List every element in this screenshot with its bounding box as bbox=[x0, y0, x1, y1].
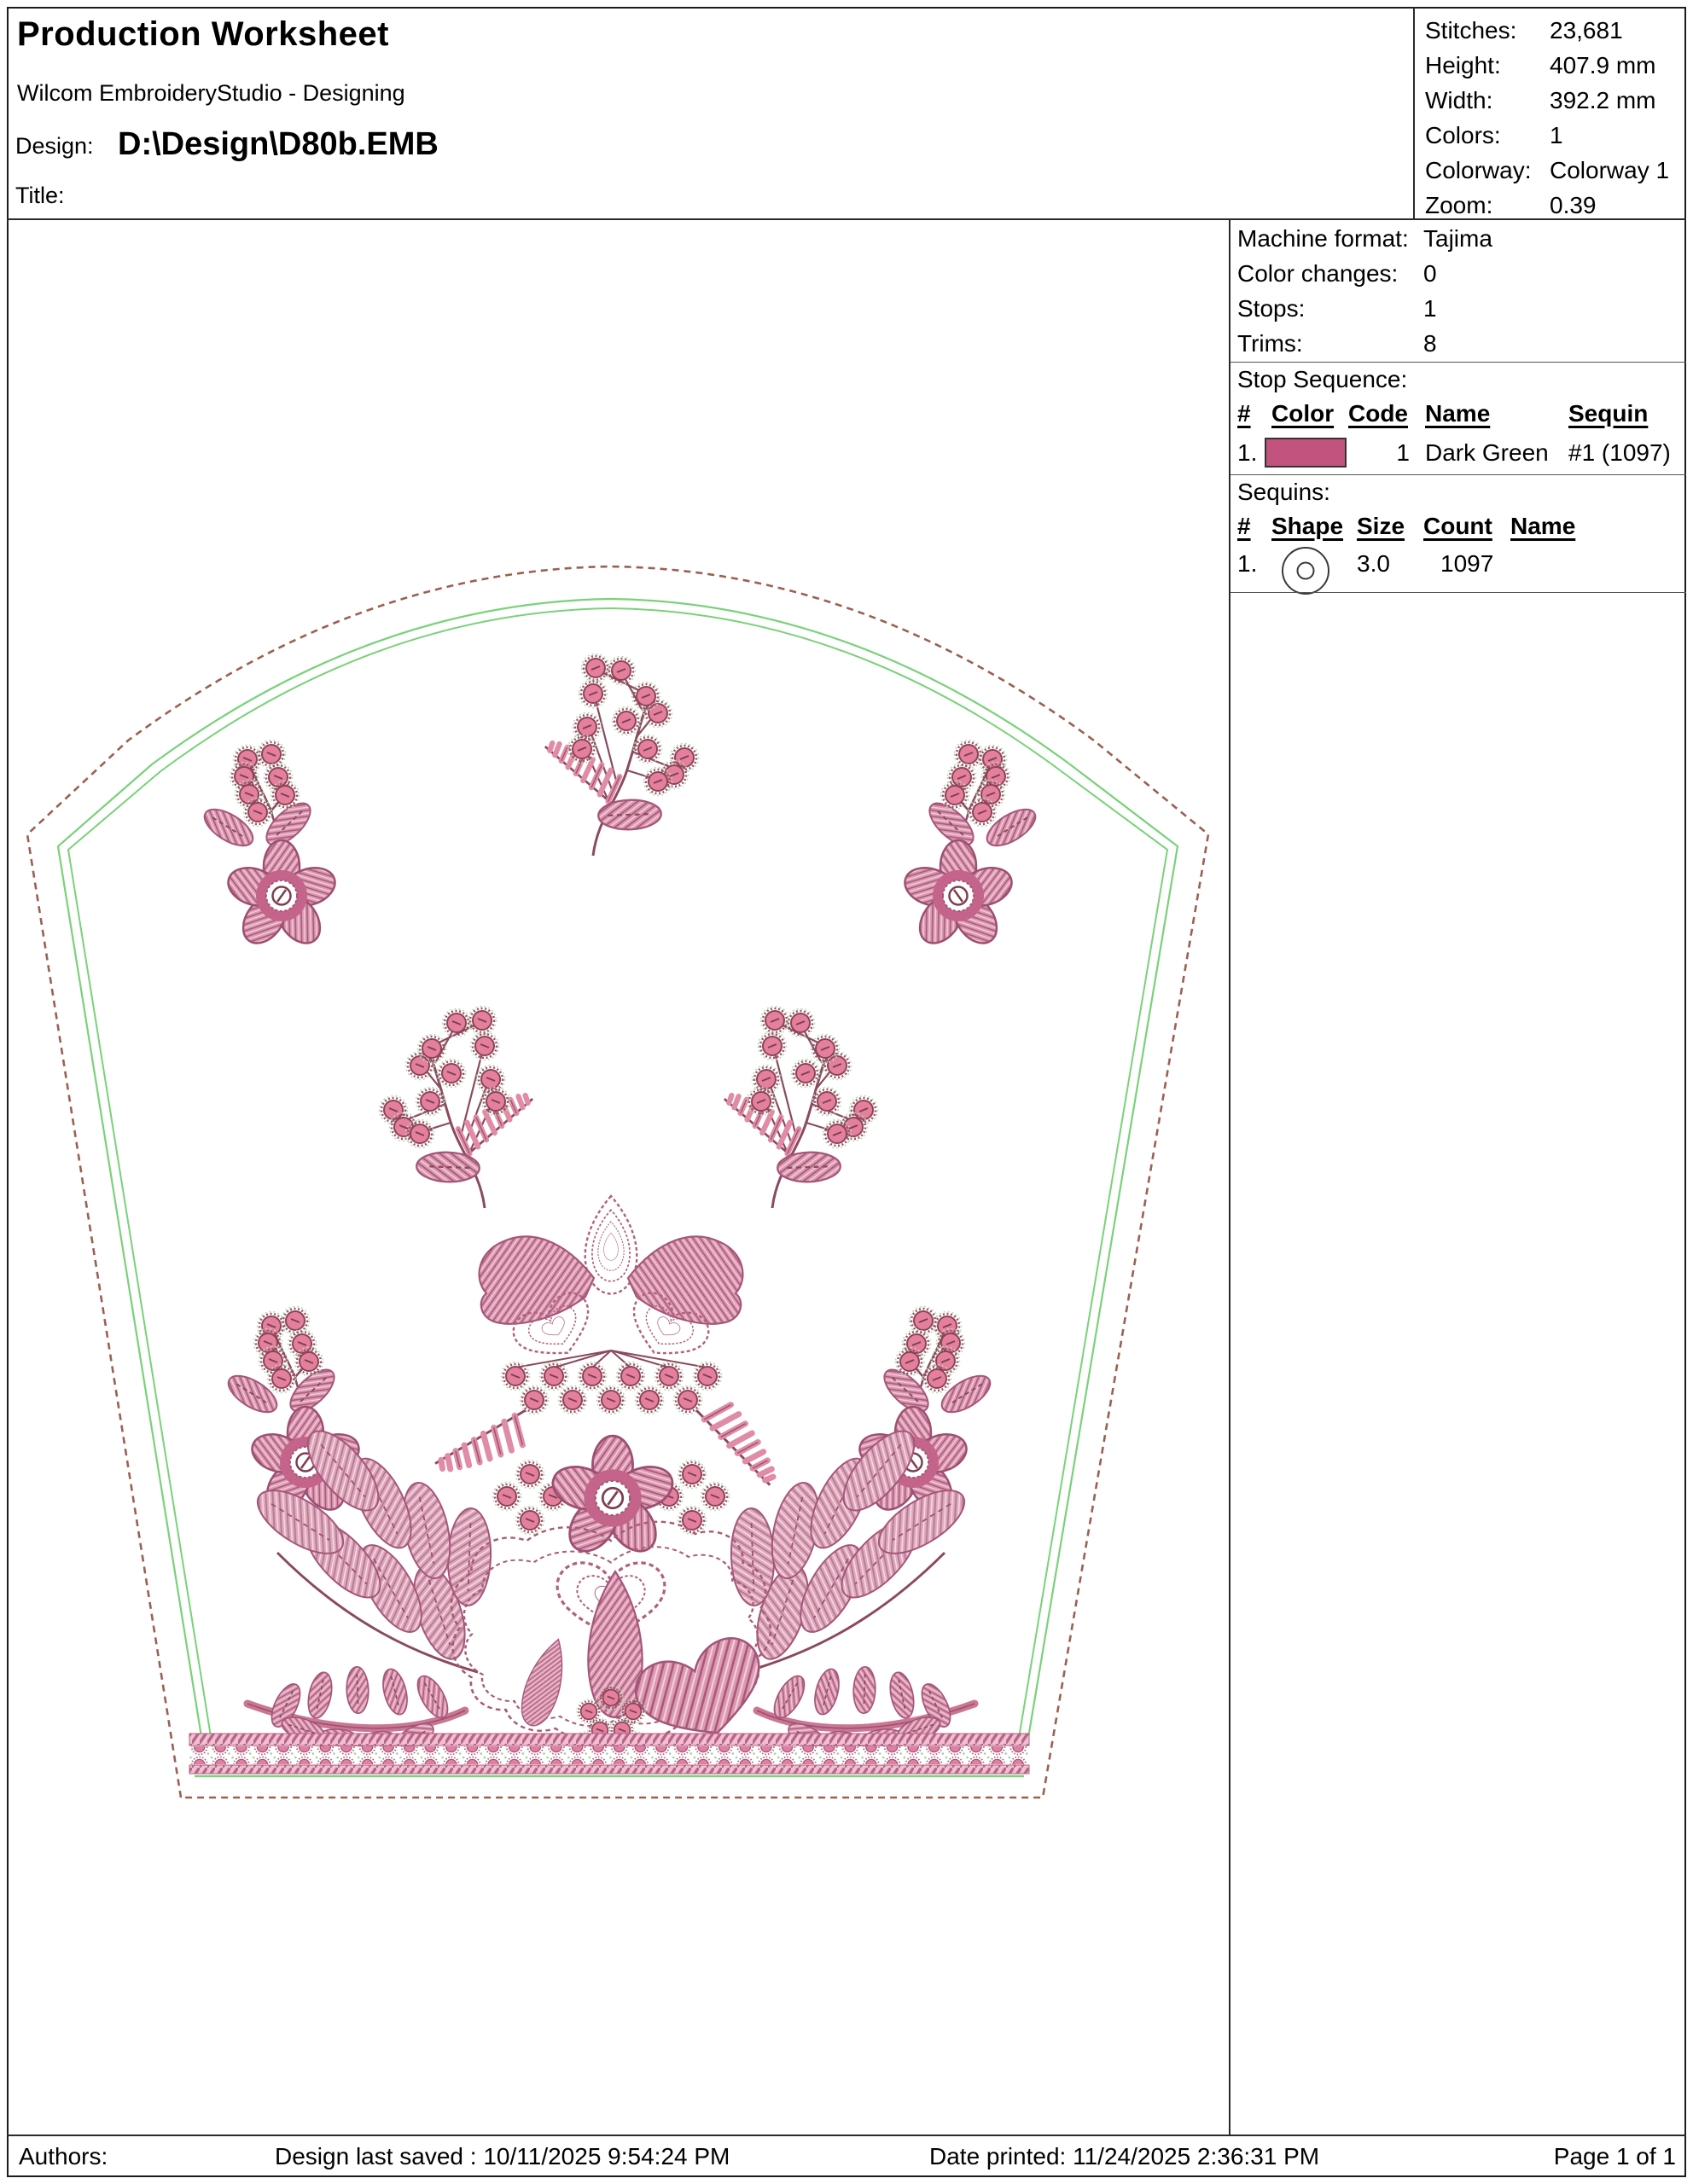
footer-authors-label: Authors: bbox=[19, 2136, 108, 2177]
mid-sprig-right bbox=[724, 1007, 878, 1209]
stop-row-num: 1. bbox=[1237, 439, 1257, 467]
machine-info: Machine format: Tajima Color changes: 0 … bbox=[1230, 220, 1686, 362]
stop-row-sequin: #1 (1097) bbox=[1568, 439, 1671, 467]
side-motif-top-right bbox=[900, 741, 1041, 951]
info-row-value: 1 bbox=[1550, 122, 1563, 149]
footer-last-saved: Design last saved : 10/11/2025 9:54:24 P… bbox=[275, 2136, 730, 2177]
info-box: Stitches: 23,681 Height: 407.9 mm Width:… bbox=[1415, 7, 1686, 218]
machine-row-value: 1 bbox=[1423, 295, 1437, 322]
column-header: Color bbox=[1271, 400, 1334, 427]
border-band bbox=[189, 1734, 1029, 1776]
column-header: Count bbox=[1423, 513, 1492, 540]
info-row-label: Zoom: bbox=[1425, 192, 1492, 219]
app-subtitle: Wilcom EmbroideryStudio - Designing bbox=[17, 80, 405, 107]
column-header: Sequin bbox=[1568, 400, 1648, 427]
production-worksheet-page: { "header": { "title": "Production Works… bbox=[0, 0, 1693, 2184]
info-row-value: 23,681 bbox=[1550, 17, 1623, 44]
machine-row-value: 0 bbox=[1423, 260, 1437, 288]
column-header: Name bbox=[1510, 513, 1575, 540]
design-label: Design: bbox=[15, 133, 94, 160]
sequin-row-count: 1097 bbox=[1440, 550, 1493, 578]
center-crown-motif bbox=[435, 1196, 794, 1560]
column-header: Size bbox=[1357, 513, 1405, 540]
design-path: D:\Design\D80b.EMB bbox=[118, 126, 439, 163]
sequins-heading: Sequins: bbox=[1237, 479, 1330, 506]
machine-row-label: Color changes: bbox=[1237, 260, 1398, 288]
sequin-row-size: 3.0 bbox=[1357, 550, 1390, 578]
column-header: Shape bbox=[1271, 513, 1343, 540]
design-preview bbox=[7, 220, 1229, 2135]
column-header: # bbox=[1237, 513, 1251, 540]
side-motif-top-left bbox=[199, 741, 340, 951]
info-row-label: Colorway: bbox=[1425, 157, 1531, 184]
info-row-value: 0.39 bbox=[1550, 192, 1597, 219]
info-row-label: Stitches: bbox=[1425, 17, 1516, 44]
sequin-shape-icon bbox=[1278, 543, 1333, 598]
machine-row-value: Tajima bbox=[1423, 225, 1492, 253]
machine-row-label: Machine format: bbox=[1237, 225, 1409, 253]
info-row-value: 392.2 mm bbox=[1550, 87, 1656, 114]
footer-page-number: Page 1 of 1 bbox=[1554, 2136, 1676, 2177]
page-title: Production Worksheet bbox=[17, 15, 389, 54]
info-row-value: 407.9 mm bbox=[1550, 52, 1656, 79]
stop-sequence-section: Stop Sequence: # Color Code Name Sequin … bbox=[1230, 363, 1686, 474]
mid-sprig-left bbox=[380, 1007, 533, 1209]
panel-section-divider bbox=[1230, 592, 1686, 593]
stop-row-name: Dark Green bbox=[1425, 439, 1549, 467]
info-row-label: Width: bbox=[1425, 87, 1492, 114]
info-row-label: Height: bbox=[1425, 52, 1501, 79]
machine-row-value: 8 bbox=[1423, 330, 1437, 357]
column-header: Code bbox=[1348, 400, 1408, 427]
sequin-row-num: 1. bbox=[1237, 550, 1257, 578]
top-sprig bbox=[545, 654, 699, 857]
sequins-section: Sequins: # Shape Size Count Name 1. 3.0 … bbox=[1230, 475, 1686, 592]
info-row-value: Colorway 1 bbox=[1550, 157, 1669, 184]
stop-row-code: 1 bbox=[1348, 439, 1410, 467]
title-label: Title: bbox=[15, 183, 65, 209]
footer-date-printed: Date printed: 11/24/2025 2:36:31 PM bbox=[929, 2136, 1319, 2177]
color-swatch bbox=[1265, 438, 1347, 468]
footer: Authors: Design last saved : 10/11/2025 … bbox=[7, 2136, 1684, 2175]
stop-sequence-heading: Stop Sequence: bbox=[1237, 366, 1407, 393]
column-header: # bbox=[1237, 400, 1251, 427]
info-row-label: Colors: bbox=[1425, 122, 1501, 149]
machine-row-label: Trims: bbox=[1237, 330, 1303, 357]
column-header: Name bbox=[1425, 400, 1490, 427]
machine-row-label: Stops: bbox=[1237, 295, 1305, 322]
bottom-crown-motif bbox=[451, 1522, 777, 1763]
